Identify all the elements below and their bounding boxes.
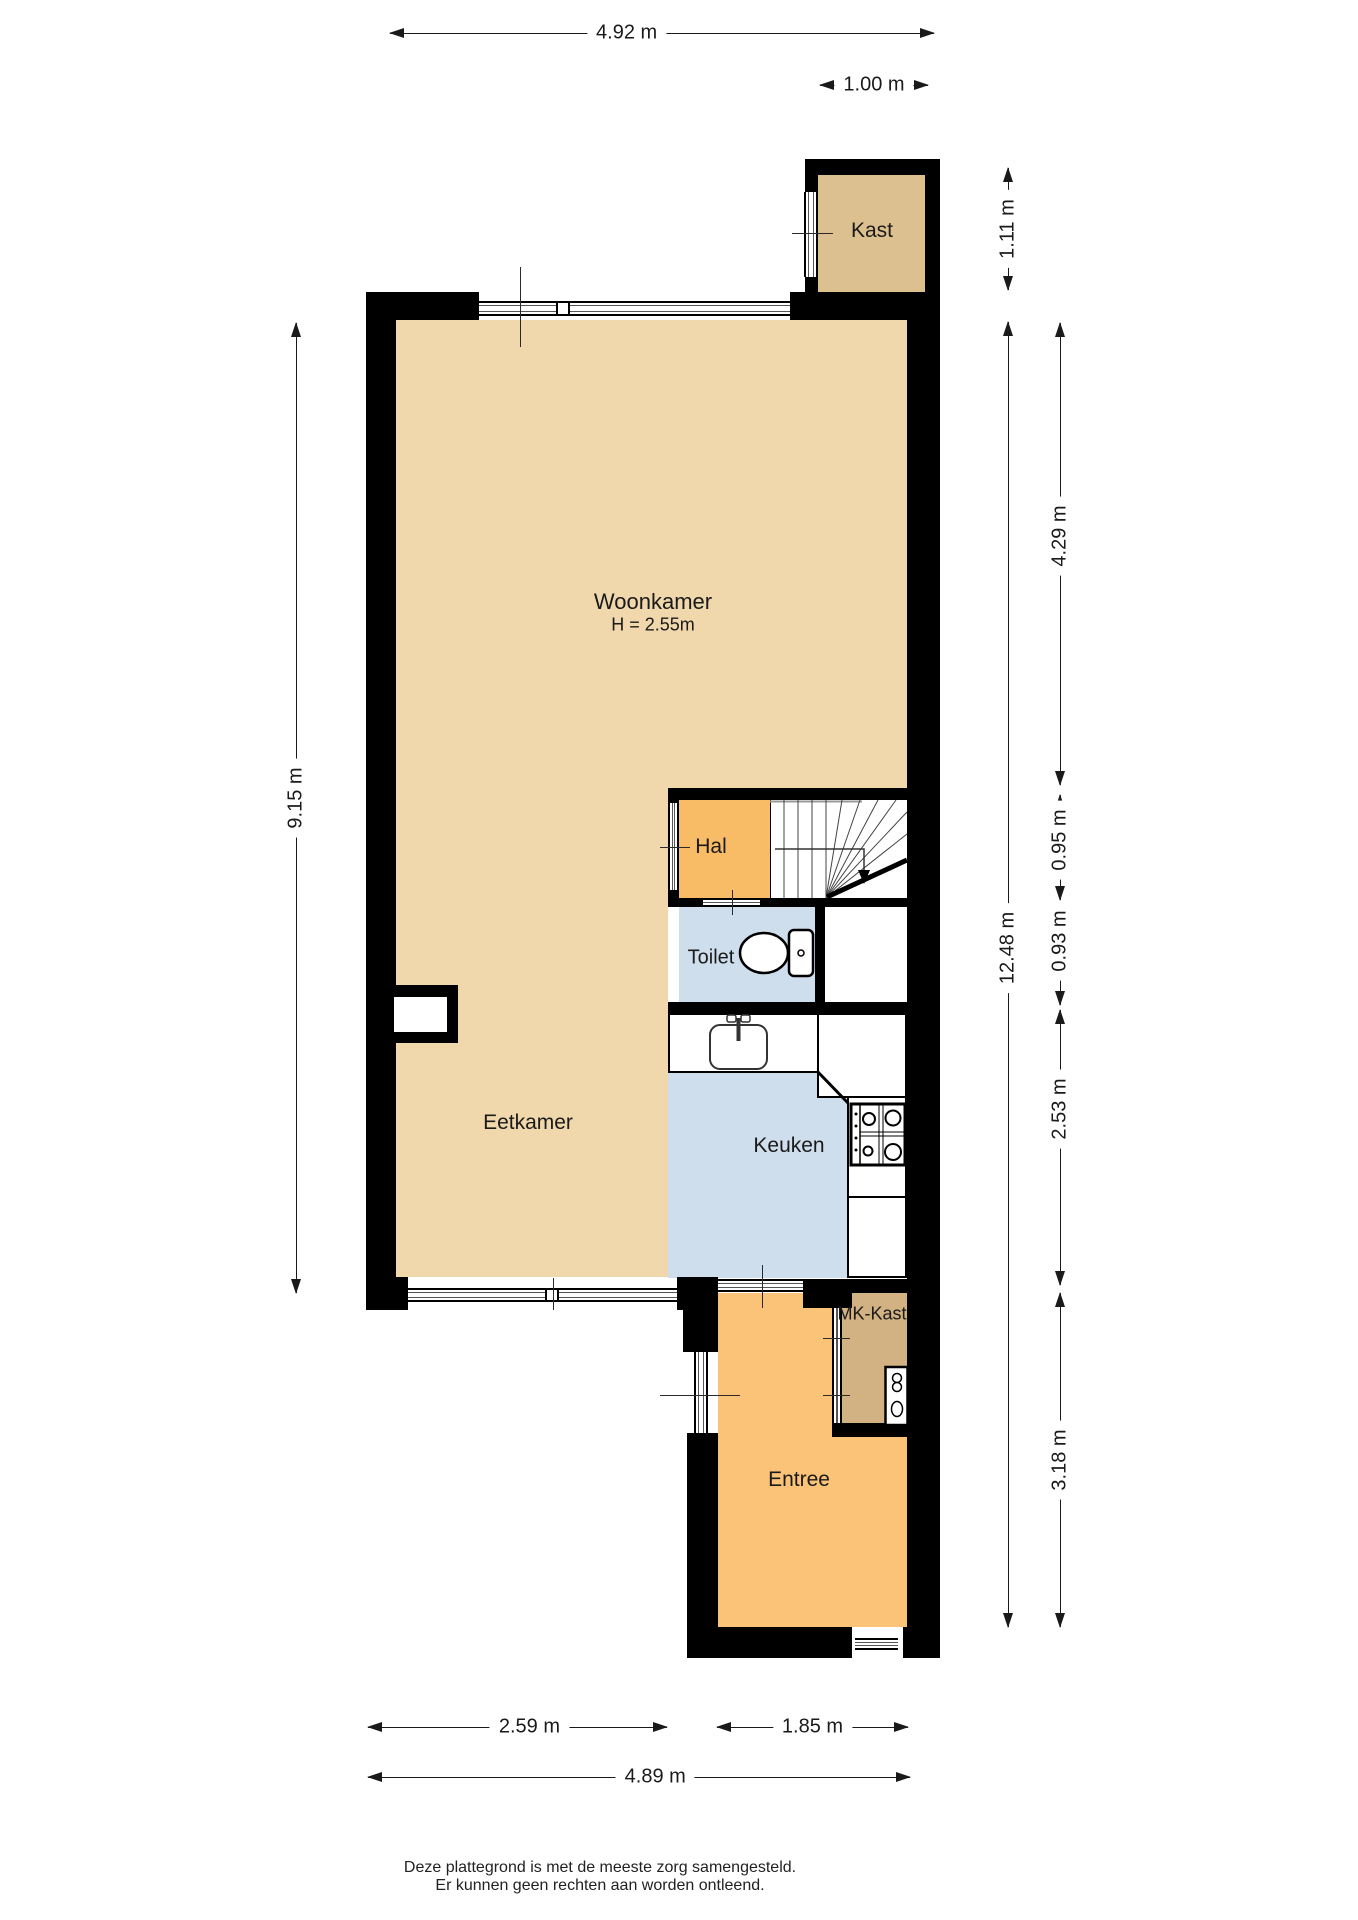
disclaimer-line-1: Deze plattegrond is met de meeste zorg s…	[404, 1859, 796, 1877]
tick-mark	[660, 1395, 740, 1396]
dimension-value: 1.00 m	[834, 74, 913, 97]
room-label-keuken: Keuken	[753, 1134, 824, 1158]
room-label-woonkamer: Woonkamer	[594, 589, 712, 615]
window-mullion	[556, 301, 570, 316]
wall	[852, 1279, 910, 1293]
dimension-value: 1.85 m	[773, 1716, 852, 1739]
dimension-value: 9.15 m	[285, 759, 308, 838]
room-label-mk-kast: MK-Kast	[837, 1304, 906, 1325]
dimension-value: 0.95 m	[1049, 801, 1072, 880]
meter-panel-icon	[884, 1365, 910, 1427]
wall	[907, 292, 940, 1658]
window	[804, 192, 818, 277]
window	[694, 1352, 708, 1433]
stairs-icon	[770, 800, 907, 898]
tick-mark	[553, 1278, 554, 1310]
wall	[805, 159, 818, 192]
mk-kast-door	[832, 1308, 842, 1423]
wall	[683, 1277, 718, 1352]
tick-mark	[792, 233, 833, 234]
wall	[366, 292, 396, 1310]
wall	[925, 159, 940, 292]
wall	[687, 1433, 718, 1658]
wall	[668, 898, 703, 907]
wall	[687, 1627, 852, 1658]
dimension-value: 4.92 m	[587, 22, 666, 45]
room-label-kast: Kast	[851, 219, 893, 243]
dimension-value: 4.29 m	[1049, 496, 1072, 575]
window	[479, 301, 790, 316]
wall	[815, 907, 825, 1002]
wall-niche-opening	[394, 997, 447, 1032]
room-label-toilet: Toilet	[688, 947, 735, 970]
tick-mark	[823, 1395, 850, 1396]
dimension-value: 2.59 m	[490, 1716, 569, 1739]
room-ceiling-height: H = 2.55m	[611, 615, 695, 636]
stove-icon	[851, 1104, 905, 1165]
wall	[760, 898, 910, 907]
keuken-entree-door	[718, 1279, 803, 1292]
dimension-value: 4.89 m	[616, 1766, 695, 1789]
disclaimer-line-2: Er kunnen geen rechten aan worden ontlee…	[404, 1877, 796, 1895]
room-label-hal: Hal	[695, 835, 727, 859]
entree-floor	[832, 1437, 908, 1627]
tick-mark	[520, 267, 521, 347]
dimension-value: 3.18 m	[1049, 1420, 1072, 1499]
dimension-value: 0.93 m	[1049, 901, 1072, 980]
window-mullion	[545, 1288, 559, 1302]
room-label-eetkamer: Eetkamer	[483, 1111, 573, 1135]
tick-mark	[660, 847, 690, 848]
wall	[668, 788, 910, 800]
wall	[366, 1277, 408, 1310]
wall	[668, 1002, 910, 1013]
dimension-value: 1.11 m	[997, 190, 1020, 268]
wall	[805, 159, 940, 175]
disclaimer-text: Deze plattegrond is met de meeste zorg s…	[404, 1859, 796, 1895]
woonkamer-floor	[396, 320, 907, 788]
window	[408, 1288, 677, 1302]
entree-floor	[718, 1293, 832, 1627]
wall	[903, 1627, 940, 1658]
floorplan-canvas: Kast Woonkamer H = 2.55m Hal Toilet Eetk…	[0, 0, 1358, 1920]
room-label-entree: Entree	[768, 1468, 830, 1492]
wall	[805, 277, 818, 292]
front-door-threshold	[855, 1638, 898, 1650]
dimension-value: 12.48 m	[997, 903, 1020, 993]
dimension-value: 2.53 m	[1049, 1069, 1072, 1148]
tick-mark	[823, 1338, 850, 1339]
